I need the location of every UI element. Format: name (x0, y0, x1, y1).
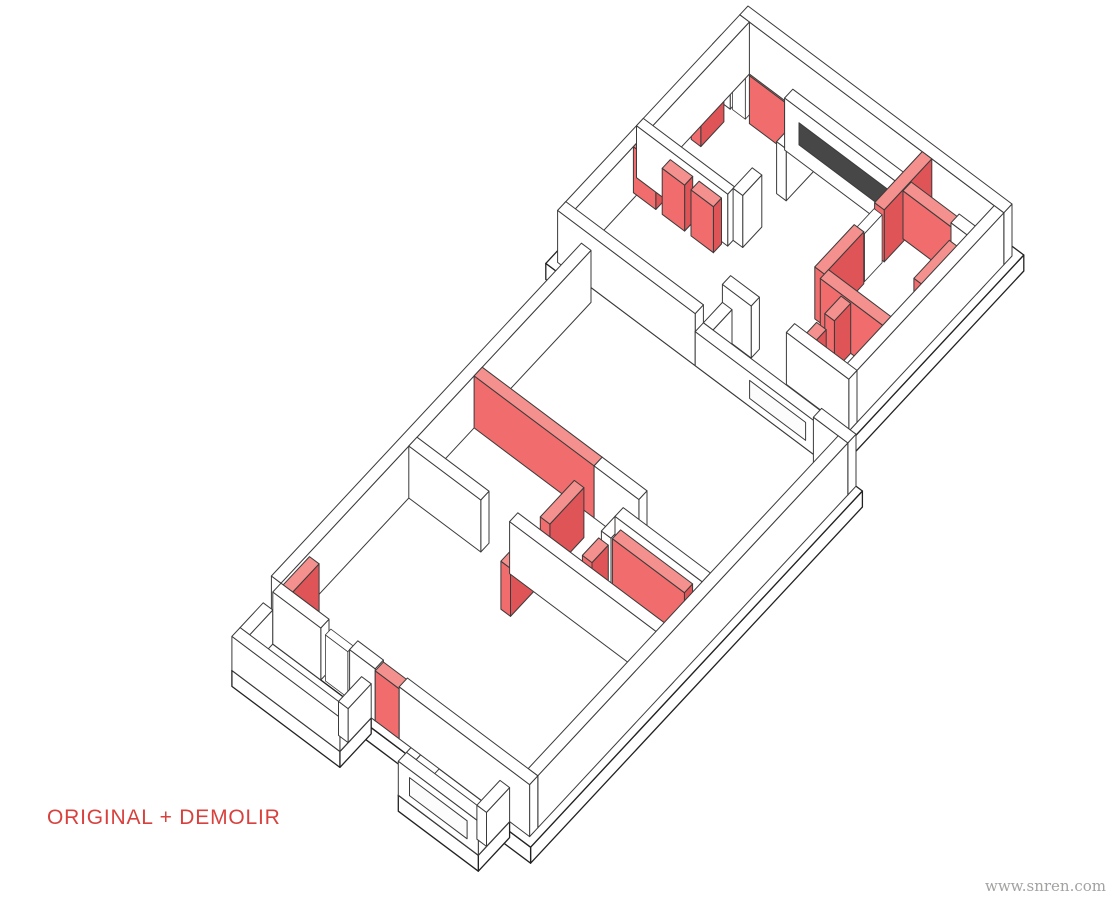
a-outer-top-side-x (1004, 204, 1012, 265)
a-balc-inner-left-side-x (751, 297, 759, 358)
watermark-text: www.snren.com (985, 877, 1106, 895)
page: ORIGINAL + DEMOLIR www.snren.com (0, 0, 1120, 901)
drawing-title-label: ORIGINAL + DEMOLIR (47, 806, 281, 830)
a-balc-inner-right-side-x (849, 370, 857, 431)
b-end-wall-right-side-x (530, 776, 538, 837)
a-leftroom-divider-b-side-y (733, 188, 743, 247)
bedroom-divider-red-panel-side-y (501, 561, 511, 616)
axonometric-floor-plan (0, 0, 1120, 901)
b-top-step-side-x (848, 434, 856, 495)
a-closet-red-3-side-x (713, 198, 721, 253)
bedroom-divider-left-side-x (481, 491, 489, 552)
